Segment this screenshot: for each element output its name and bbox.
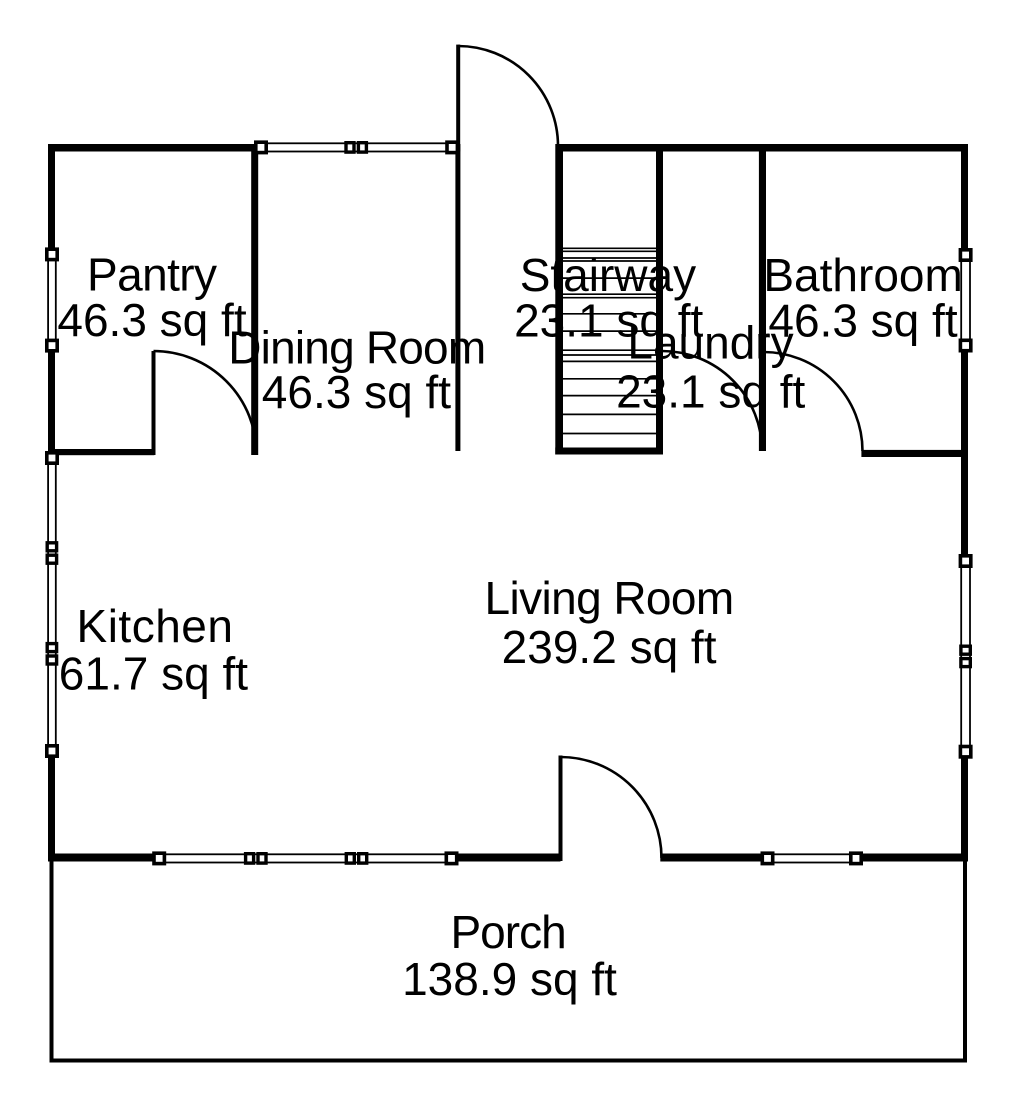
svg-text:Kitchen: Kitchen [77,600,234,652]
svg-text:Stairway: Stairway [520,249,696,301]
svg-text:239.2 sq ft: 239.2 sq ft [502,621,717,673]
svg-text:Bathroom: Bathroom [763,249,962,301]
svg-text:Pantry: Pantry [87,248,217,300]
svg-text:61.7 sq ft: 61.7 sq ft [59,648,248,700]
svg-text:Porch: Porch [451,906,566,958]
svg-text:46.3 sq ft: 46.3 sq ft [57,294,246,346]
svg-text:Living Room: Living Room [485,572,734,624]
svg-text:23.1 sq ft: 23.1 sq ft [616,366,805,418]
svg-text:138.9 sq ft: 138.9 sq ft [402,953,617,1005]
svg-text:46.3 sq ft: 46.3 sq ft [768,295,957,347]
svg-text:46.3 sq ft: 46.3 sq ft [262,366,451,418]
